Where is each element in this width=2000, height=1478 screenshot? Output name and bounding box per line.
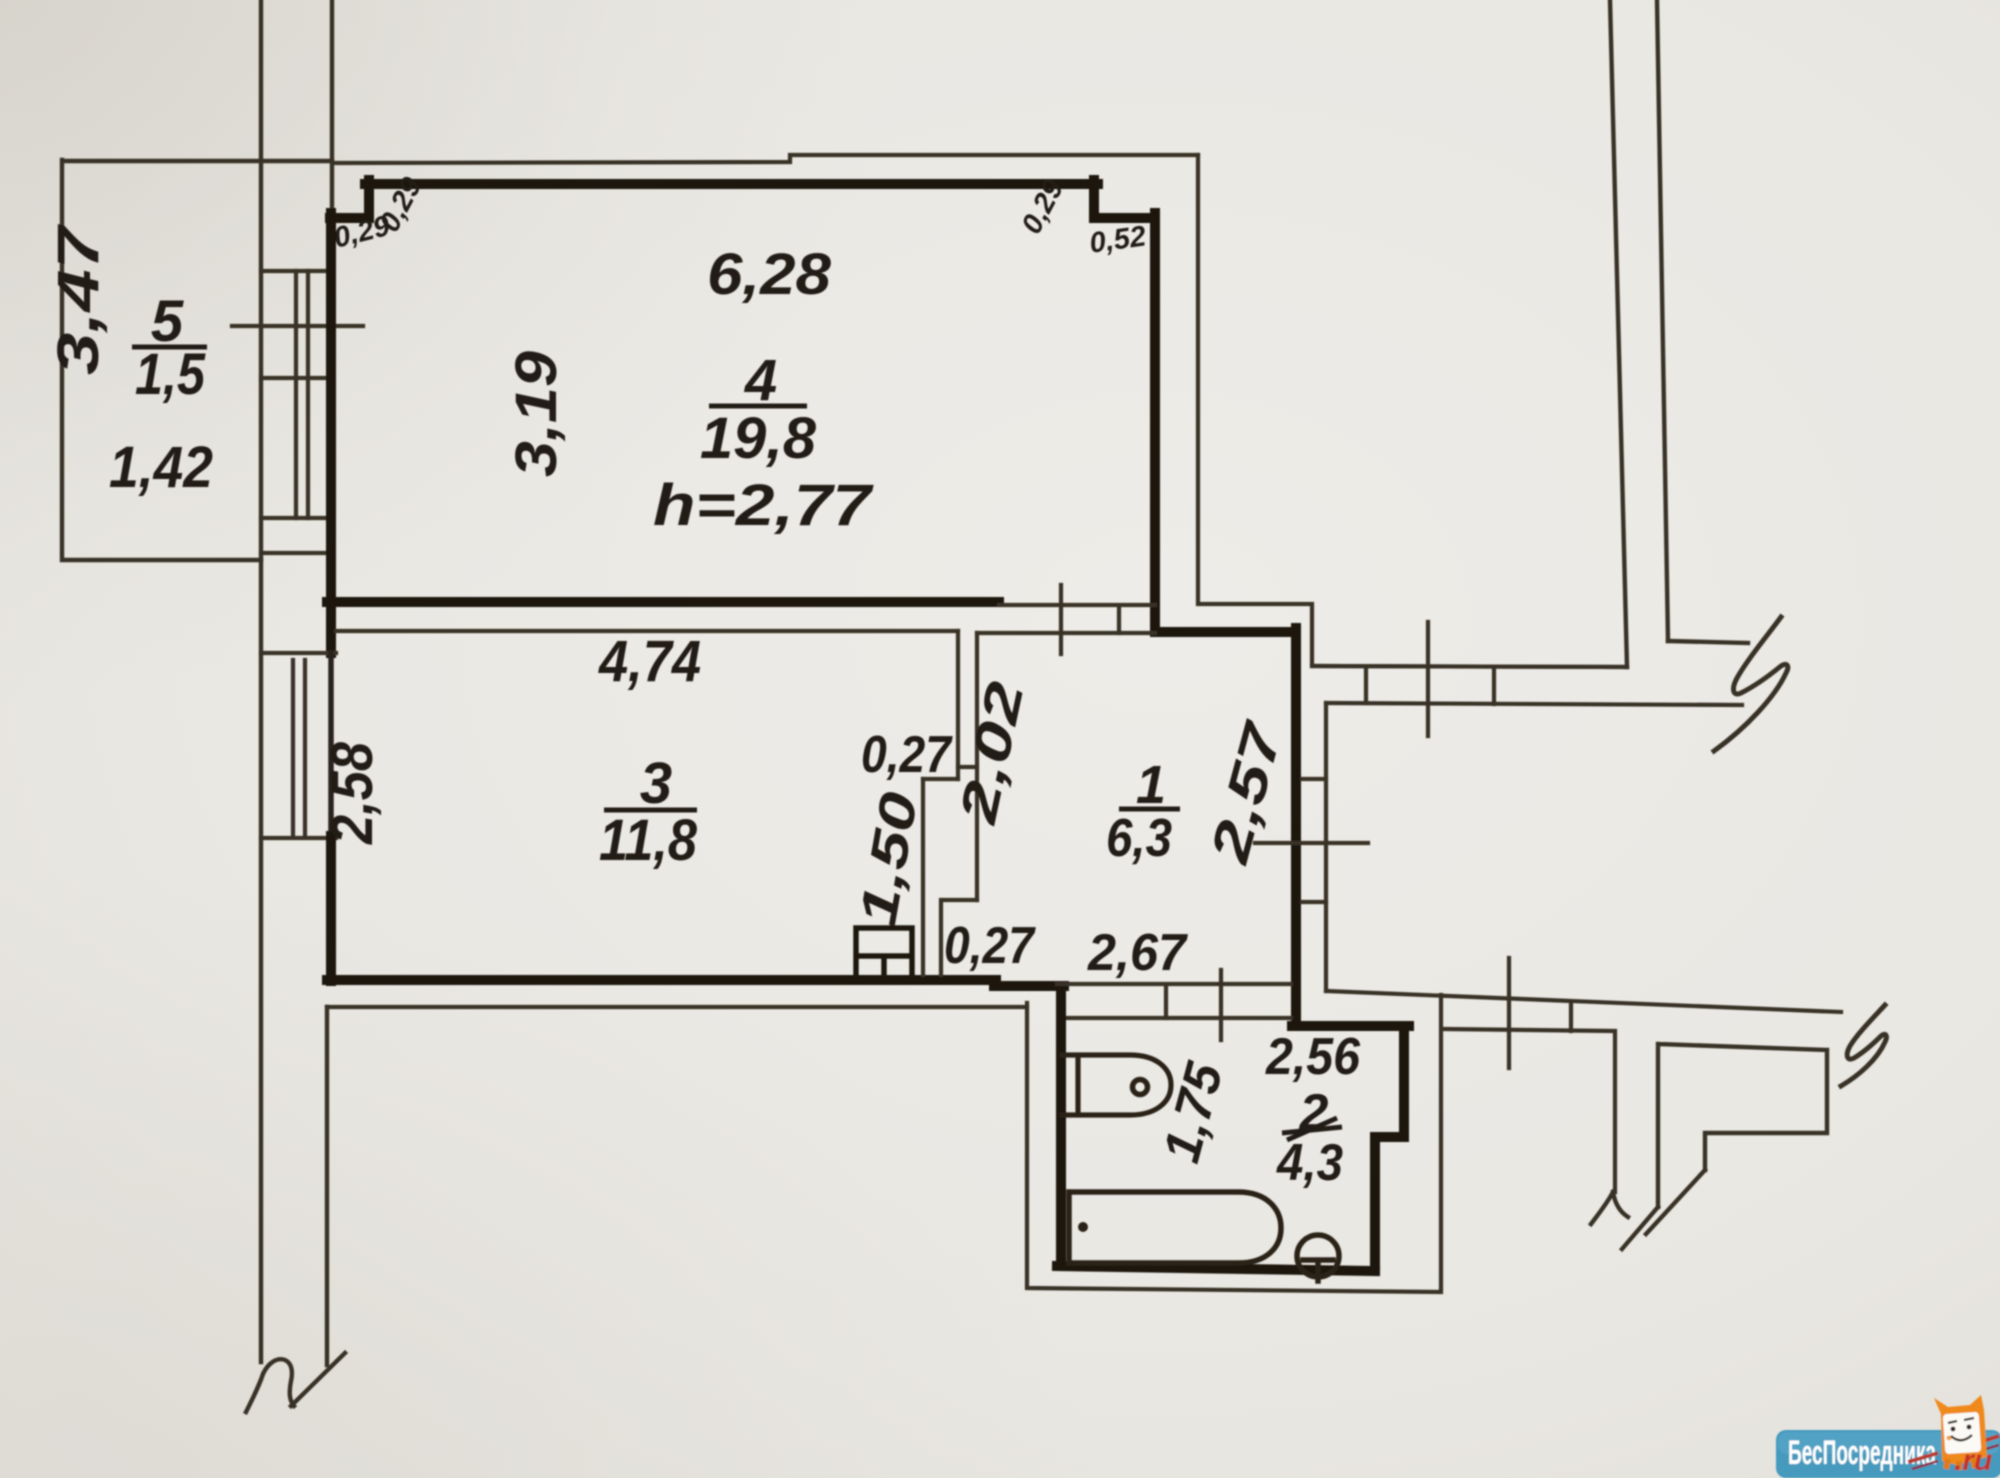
svg-text:2,58: 2,58 [320,741,385,845]
svg-text:h=2,77: h=2,77 [653,473,874,538]
svg-text:6,28: 6,28 [707,242,832,307]
svg-text:1: 1 [1136,755,1166,815]
svg-text:.ru: .ru [1954,1444,1992,1477]
svg-text:4,3: 4,3 [1276,1134,1343,1192]
svg-text:0,27: 0,27 [861,726,953,784]
svg-text:0,27: 0,27 [944,917,1036,975]
svg-text:11,8: 11,8 [599,808,698,873]
svg-text:6,3: 6,3 [1106,808,1172,868]
svg-text:БесПосредника: БесПосредника [1788,1434,1937,1472]
svg-text:2,67: 2,67 [1087,924,1188,982]
svg-text:4: 4 [744,348,777,413]
svg-text:1,5: 1,5 [135,342,206,407]
svg-text:3,47: 3,47 [46,223,111,375]
svg-text:1,42: 1,42 [109,435,213,500]
svg-text:3,19: 3,19 [504,351,569,477]
svg-text:4,74: 4,74 [598,629,701,694]
svg-text:2,56: 2,56 [1265,1028,1361,1086]
svg-text:3: 3 [640,751,672,816]
svg-text:19,8: 19,8 [700,406,817,471]
